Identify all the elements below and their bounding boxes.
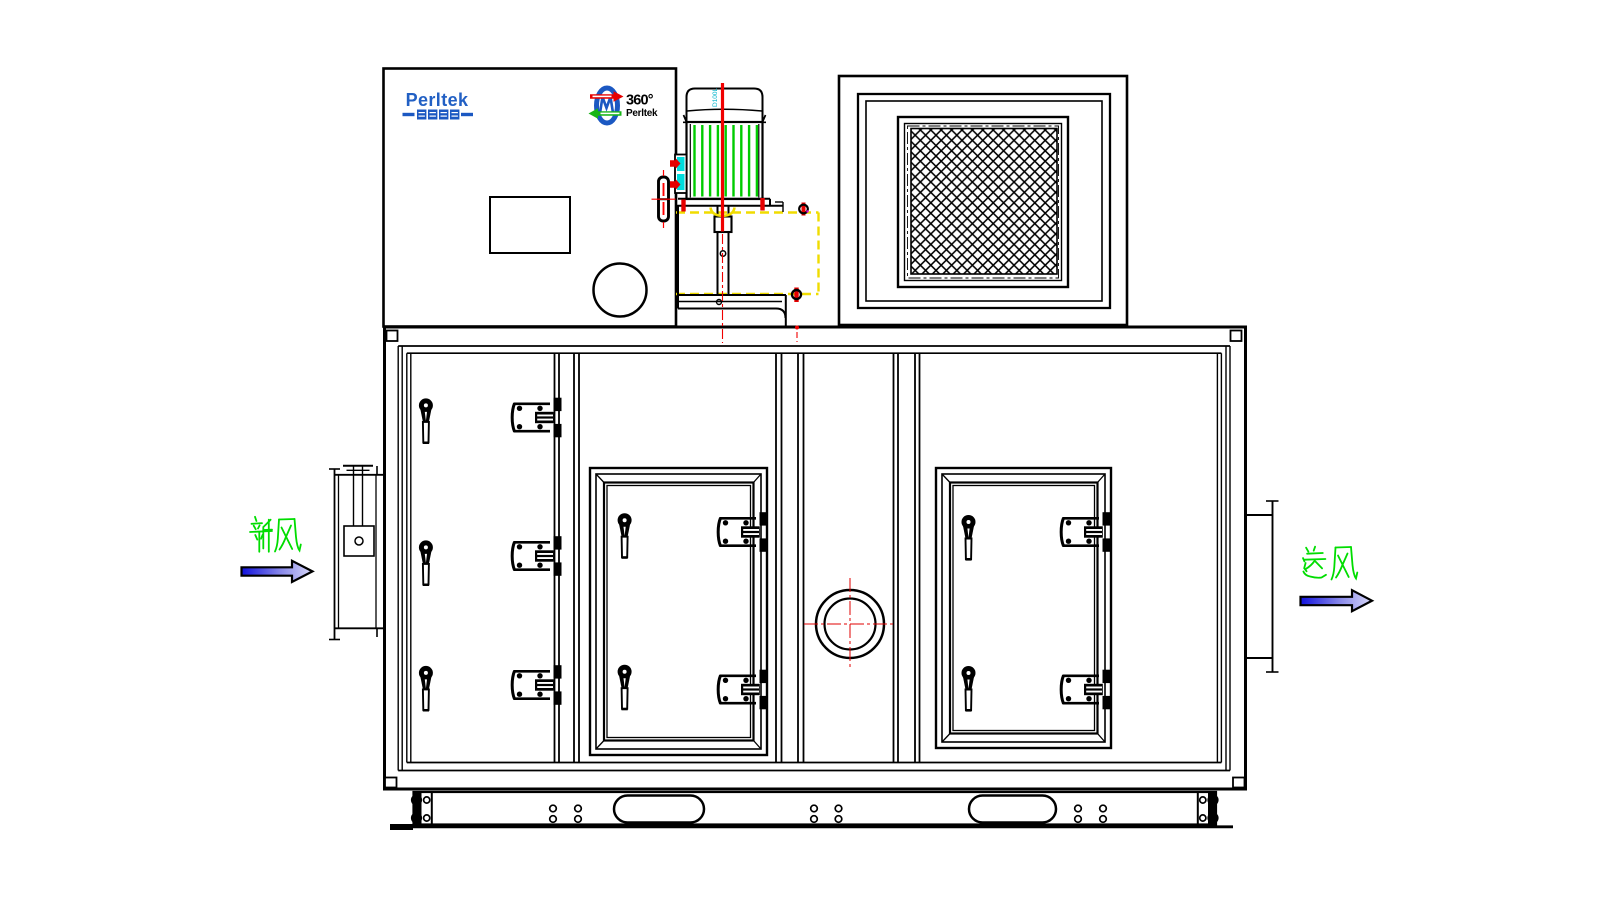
- svg-text:Perltek: Perltek: [406, 90, 469, 110]
- svg-text:D100L: D100L: [712, 87, 719, 107]
- svg-text:360°: 360°: [626, 93, 654, 109]
- svg-text:Perltek: Perltek: [626, 108, 658, 119]
